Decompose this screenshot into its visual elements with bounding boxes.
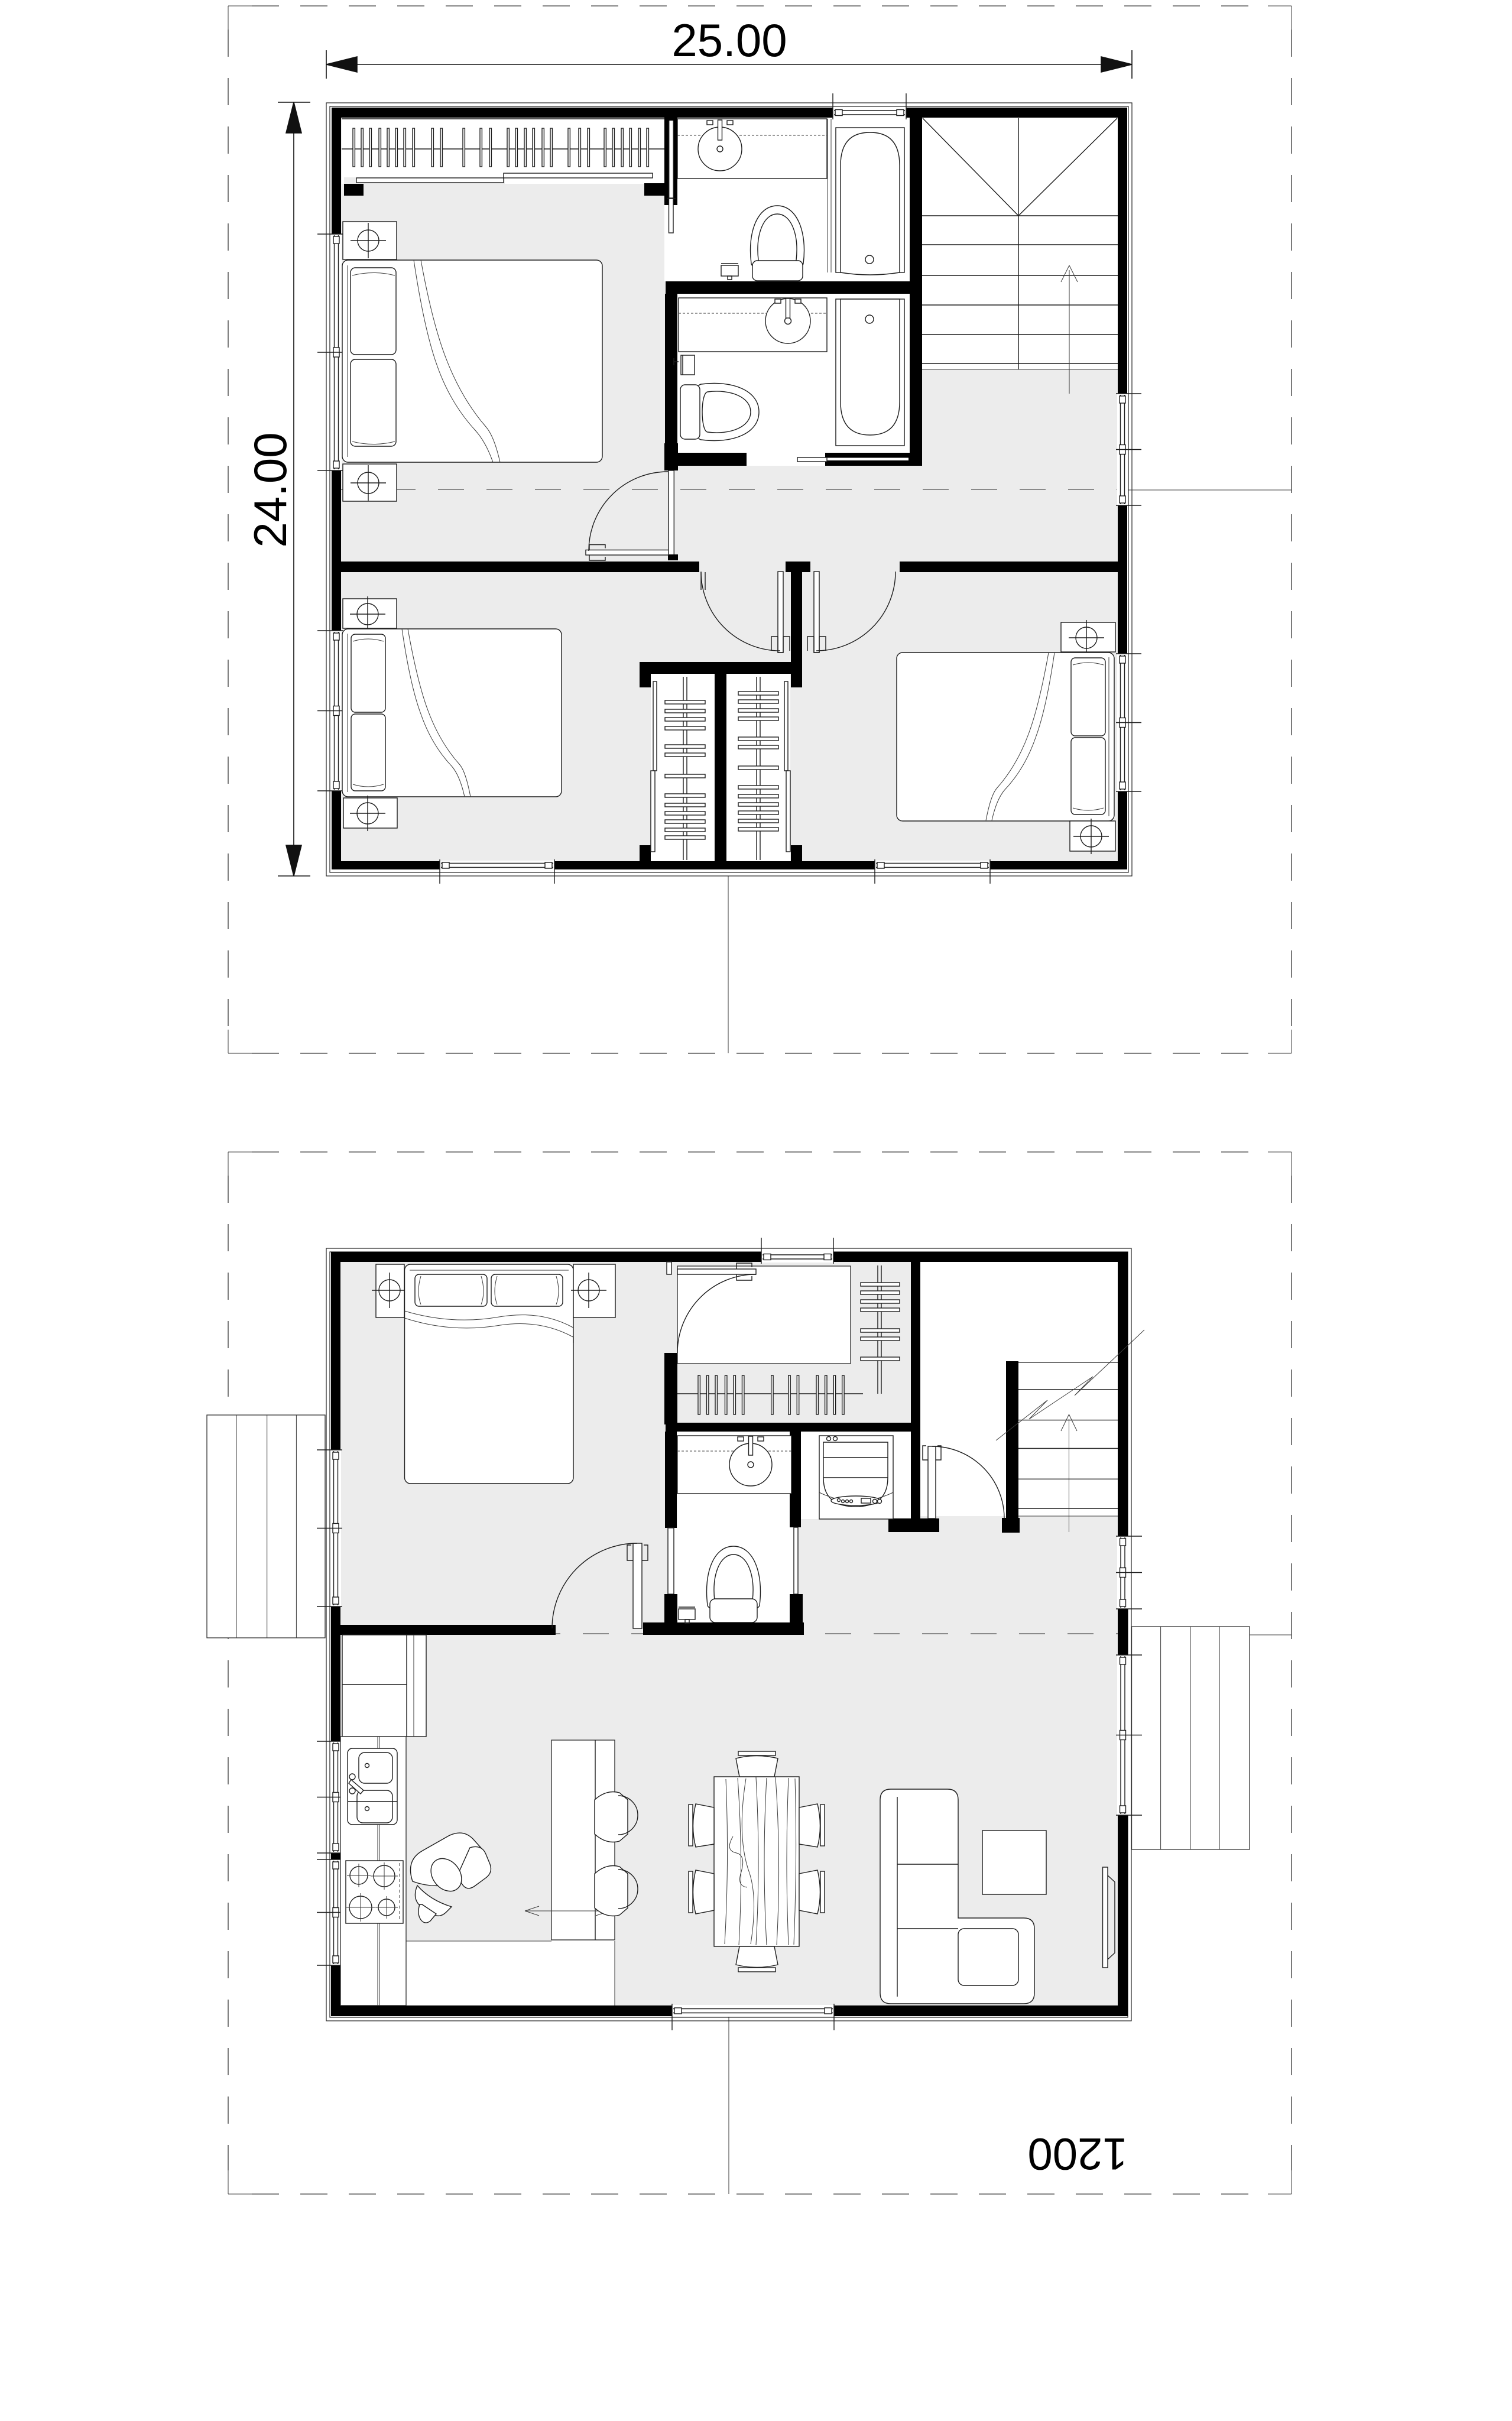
svg-text:25.00: 25.00 xyxy=(671,14,787,66)
svg-text:24.00: 24.00 xyxy=(244,432,296,547)
svg-text:1200: 1200 xyxy=(1027,2128,1127,2179)
